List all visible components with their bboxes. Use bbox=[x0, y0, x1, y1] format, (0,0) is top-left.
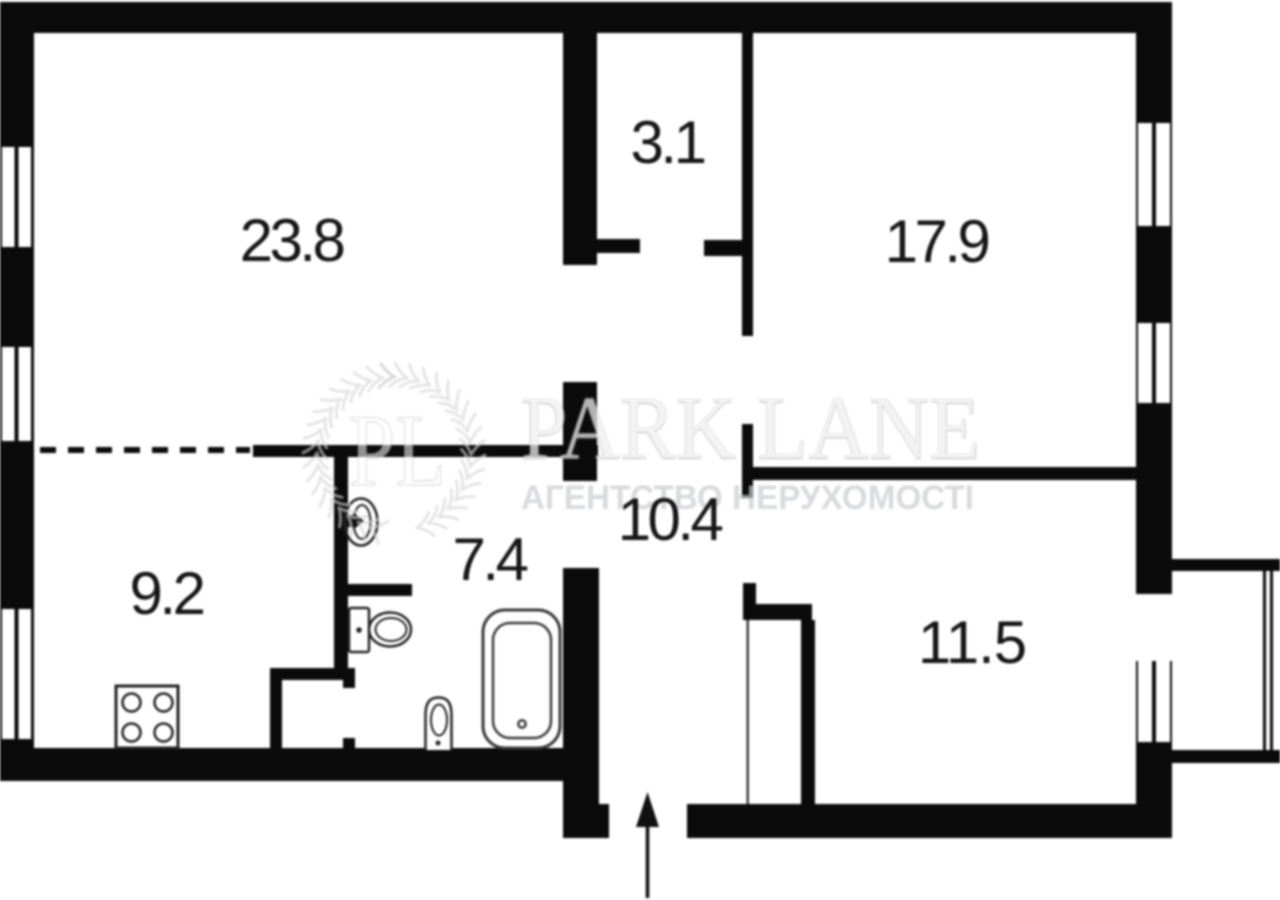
svg-text:23.8: 23.8 bbox=[240, 207, 344, 274]
svg-text:7.4: 7.4 bbox=[453, 526, 528, 593]
svg-text:9.2: 9.2 bbox=[130, 560, 204, 627]
svg-text:17.9: 17.9 bbox=[885, 208, 989, 275]
svg-text:3.1: 3.1 bbox=[631, 109, 705, 176]
svg-text:PARK LANE: PARK LANE bbox=[521, 379, 980, 478]
svg-text:11.5: 11.5 bbox=[918, 609, 1026, 676]
svg-text:10.4: 10.4 bbox=[618, 486, 723, 553]
svg-text:АГЕНТСТВО НЕРУХОМОСТІ: АГЕНТСТВО НЕРУХОМОСТІ bbox=[521, 479, 974, 517]
svg-text:PL: PL bbox=[349, 394, 446, 508]
